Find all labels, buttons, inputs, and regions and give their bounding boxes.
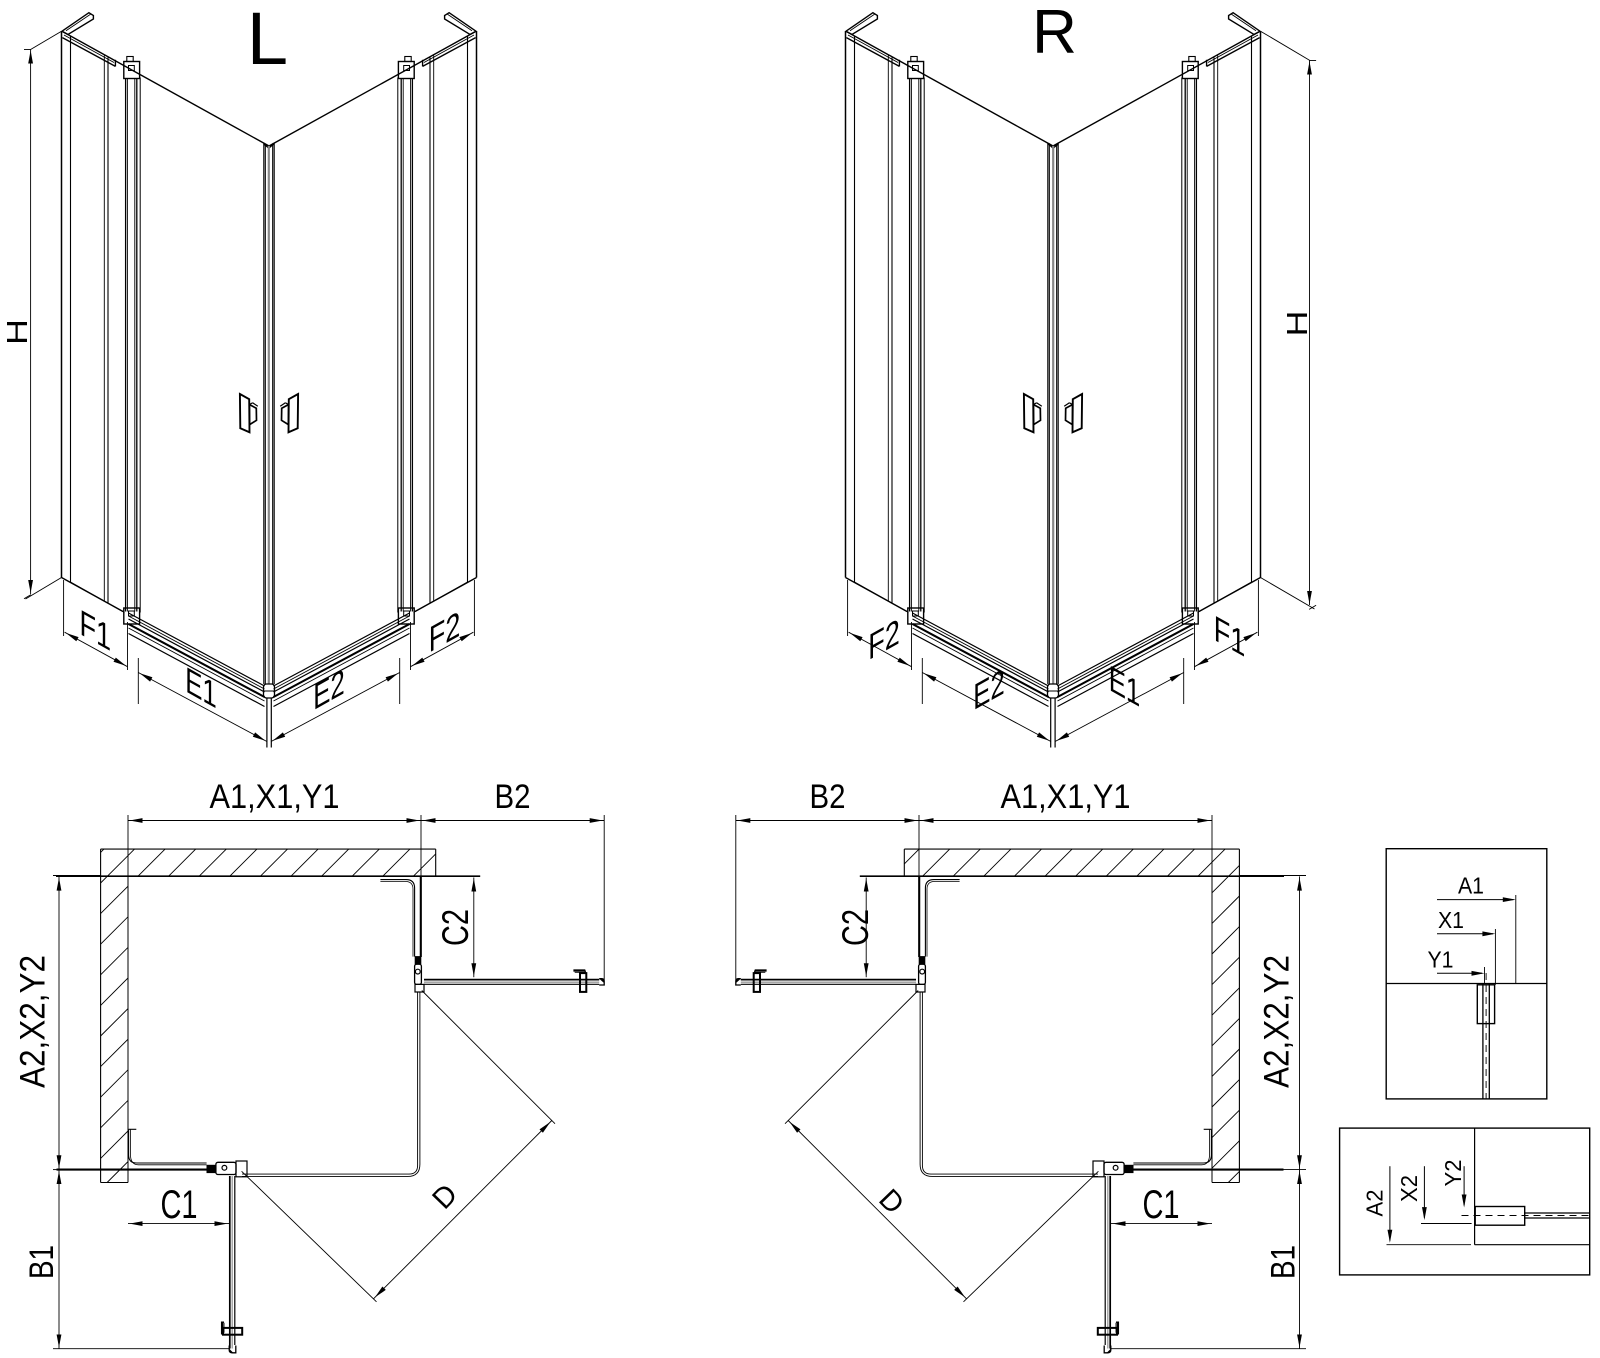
svg-text:X1: X1 <box>1438 907 1464 933</box>
svg-text:A2: A2 <box>1362 1190 1388 1217</box>
svg-text:B2: B2 <box>495 778 531 816</box>
svg-text:A1,X1,Y1: A1,X1,Y1 <box>210 778 340 816</box>
svg-text:Y2: Y2 <box>1440 1160 1466 1187</box>
svg-text:H: H <box>2 319 34 345</box>
svg-text:A2,X2,Y2: A2,X2,Y2 <box>1258 955 1297 1088</box>
svg-text:C2: C2 <box>835 909 876 946</box>
svg-text:X2: X2 <box>1396 1175 1422 1202</box>
svg-text:C2: C2 <box>435 909 476 946</box>
svg-text:C1: C1 <box>1143 1183 1180 1227</box>
svg-text:H: H <box>1282 311 1314 337</box>
svg-text:R: R <box>1032 0 1077 67</box>
svg-text:A1,X1,Y1: A1,X1,Y1 <box>1001 778 1131 816</box>
svg-text:A2,X2,Y2: A2,X2,Y2 <box>14 955 53 1088</box>
svg-text:L: L <box>247 0 288 80</box>
svg-text:Y1: Y1 <box>1428 946 1454 972</box>
svg-text:B1: B1 <box>1264 1245 1302 1279</box>
svg-text:B2: B2 <box>810 778 846 816</box>
svg-text:C1: C1 <box>161 1183 198 1227</box>
svg-text:B1: B1 <box>23 1245 61 1279</box>
svg-text:A1: A1 <box>1458 873 1484 899</box>
